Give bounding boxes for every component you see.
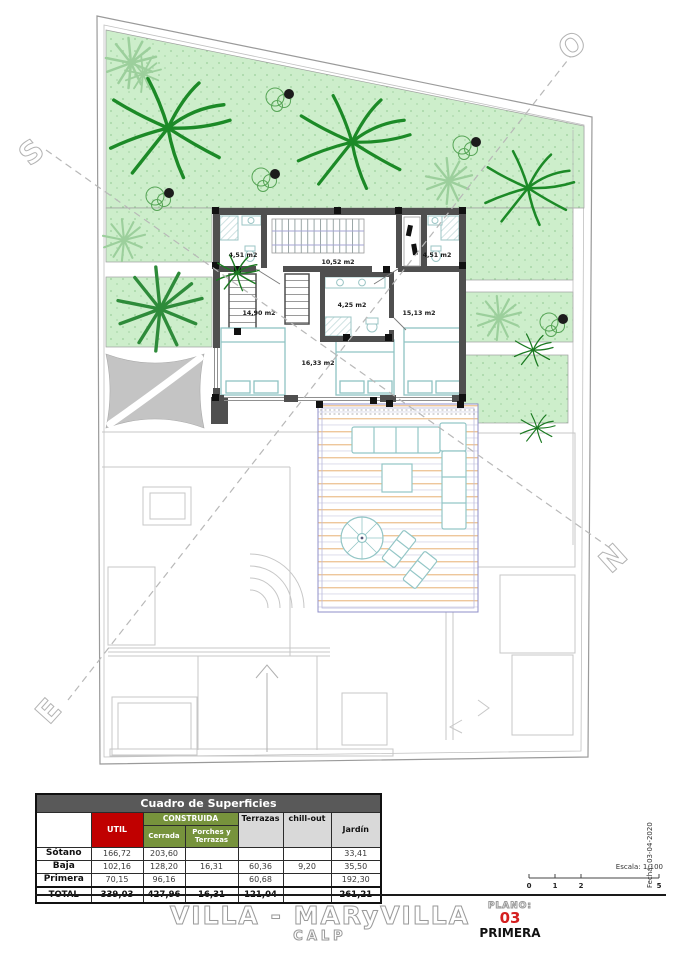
surface-table-title: Cuadro de Superficies xyxy=(36,794,381,813)
table-row-sotano: Sótano 166,72 203,60 33,41 xyxy=(36,848,381,861)
table-cell xyxy=(238,848,283,861)
room-label-bath-right: 4,51 m2 xyxy=(423,252,452,259)
surface-table: Cuadro de Superficies UTIL CONSTRUIDA Te… xyxy=(35,793,382,904)
table-cell: 35,50 xyxy=(331,861,381,874)
table-row-primera: Primera 70,15 96,16 60,68 192,30 xyxy=(36,874,381,888)
plan-sheet: 4,51 m2 10,52 m2 4,51 m2 14,90 m2 4,25 m… xyxy=(0,0,678,960)
col-group-construida: CONSTRUIDA xyxy=(143,813,238,826)
room-label-hall: 10,52 m2 xyxy=(321,259,354,266)
compass-letter-o: O xyxy=(552,25,593,68)
compass-letter-n: N xyxy=(593,538,635,581)
plano-block: PLANO: 03 PRIMERA xyxy=(466,901,554,940)
col-header-porches: Porches y Terrazas xyxy=(185,826,238,848)
scale-tick-0: 0 xyxy=(527,882,532,890)
table-cell: 16,31 xyxy=(185,861,238,874)
table-cell xyxy=(185,874,238,888)
compass-letter-s: S xyxy=(12,132,51,173)
table-cell xyxy=(283,848,331,861)
table-cell: 128,20 xyxy=(143,861,185,874)
room-label-bed-right: 15,13 m2 xyxy=(402,310,435,317)
table-cell: 9,20 xyxy=(283,861,331,874)
project-title: VILLA - MARyVILLA xyxy=(165,901,475,930)
col-header-cerrada: Cerrada xyxy=(143,826,185,848)
wardrobe xyxy=(285,274,309,324)
plano-number: 03 xyxy=(466,911,554,927)
col-header-terrazas: Terrazas xyxy=(238,813,283,848)
shade-sail xyxy=(106,354,204,428)
table-cell: 60,68 xyxy=(238,874,283,888)
table-cell xyxy=(185,848,238,861)
room-label-bath-center: 4,25 m2 xyxy=(338,302,367,309)
building-first-floor: 4,51 m2 10,52 m2 4,51 m2 14,90 m2 4,25 m… xyxy=(211,207,466,424)
room-label-bed-left: 14,90 m2 xyxy=(242,310,275,317)
coffee-table xyxy=(382,464,412,492)
plano-name: PRIMERA xyxy=(466,927,554,940)
table-cell: 33,41 xyxy=(331,848,381,861)
table-cell: 60,36 xyxy=(238,861,283,874)
table-corner-cell xyxy=(36,813,91,848)
table-cell: 192,30 xyxy=(331,874,381,888)
table-row-baja: Baja 102,16 128,20 16,31 60,36 9,20 35,5… xyxy=(36,861,381,874)
table-cell: 70,15 xyxy=(91,874,143,888)
site-plan-drawing: 4,51 m2 10,52 m2 4,51 m2 14,90 m2 4,25 m… xyxy=(0,0,678,790)
titleblock-rule xyxy=(35,894,666,896)
compass-letter-e: E xyxy=(29,692,69,731)
row-label: Primera xyxy=(36,874,91,888)
table-cell: 166,72 xyxy=(91,848,143,861)
scale-label: Escala: 1/100 xyxy=(616,863,663,871)
row-label: Baja xyxy=(36,861,91,874)
tech-closet xyxy=(404,217,420,266)
project-location: CALP xyxy=(165,929,475,944)
col-header-util: UTIL xyxy=(91,813,143,848)
scale-tick-2: 2 xyxy=(579,882,584,890)
date-label: Fecha: 03-04-2020 xyxy=(646,822,654,888)
table-cell: 203,60 xyxy=(143,848,185,861)
table-cell xyxy=(283,874,331,888)
col-header-chillout: chill-out xyxy=(283,813,331,848)
room-label-bath-left: 4,51 m2 xyxy=(229,252,258,259)
scale-tick-5: 5 xyxy=(657,882,662,890)
scale-tick-1: 1 xyxy=(553,882,558,890)
row-label: Sótano xyxy=(36,848,91,861)
parasol-icon xyxy=(341,517,383,559)
table-cell: 102,16 xyxy=(91,861,143,874)
col-header-jardin: Jardín xyxy=(331,813,381,848)
table-cell: 96,16 xyxy=(143,874,185,888)
stairs xyxy=(272,219,364,253)
